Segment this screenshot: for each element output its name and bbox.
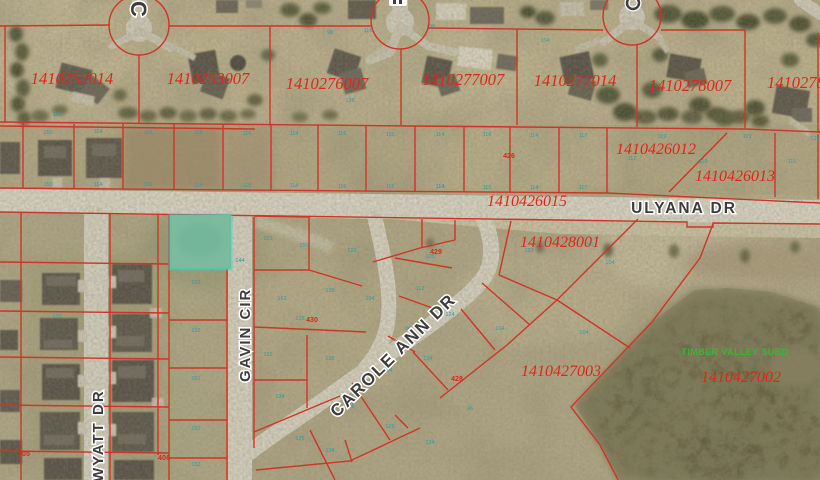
svg-text:116: 116: [243, 183, 252, 189]
svg-text:426: 426: [503, 153, 515, 160]
svg-text:1410277014: 1410277014: [534, 71, 617, 90]
svg-text:152: 152: [191, 426, 200, 432]
svg-text:1410276007: 1410276007: [286, 74, 369, 93]
svg-text:C: C: [126, 1, 151, 19]
svg-text:114: 114: [530, 185, 539, 191]
svg-text:104: 104: [495, 326, 504, 332]
svg-text:428: 428: [451, 376, 463, 383]
svg-text:119: 119: [658, 134, 667, 140]
svg-text:116: 116: [243, 131, 252, 137]
svg-text:115: 115: [386, 184, 395, 190]
svg-text:116: 116: [364, 28, 373, 34]
svg-text:153: 153: [191, 462, 200, 468]
svg-text:124: 124: [425, 440, 434, 446]
svg-text:1410252014: 1410252014: [31, 69, 114, 88]
svg-text:1410253007: 1410253007: [167, 69, 250, 88]
svg-text:117: 117: [579, 185, 588, 191]
svg-text:98: 98: [429, 24, 435, 30]
svg-text:132: 132: [810, 136, 819, 142]
svg-text:133: 133: [524, 248, 533, 254]
svg-text:126: 126: [385, 424, 394, 430]
svg-text:112: 112: [416, 286, 425, 292]
svg-text:112: 112: [628, 156, 637, 162]
svg-text:430: 430: [306, 317, 318, 324]
svg-text:GAVIN CIR: GAVIN CIR: [237, 288, 254, 382]
svg-text:150: 150: [43, 130, 52, 136]
svg-text:116: 116: [144, 182, 153, 188]
svg-text:114: 114: [530, 133, 539, 139]
svg-text:113: 113: [699, 159, 708, 165]
svg-text:114: 114: [94, 182, 103, 188]
svg-text:1410426015: 1410426015: [487, 193, 567, 210]
svg-text:TIMBER VALLEY SUBD: TIMBER VALLEY SUBD: [682, 347, 789, 357]
svg-text:114: 114: [290, 183, 299, 189]
svg-text:116: 116: [483, 185, 492, 191]
svg-text:123: 123: [263, 236, 272, 242]
svg-text:405: 405: [18, 451, 30, 458]
svg-text:150: 150: [43, 182, 52, 188]
svg-text:116: 116: [338, 184, 347, 190]
svg-text:104: 104: [579, 330, 588, 336]
svg-text:134: 134: [423, 356, 432, 362]
svg-text:115: 115: [788, 159, 797, 165]
svg-text:104: 104: [365, 296, 374, 302]
svg-text:152: 152: [191, 328, 200, 334]
svg-text:135: 135: [325, 288, 334, 294]
svg-text:126: 126: [295, 436, 304, 442]
svg-text:1410427003: 1410427003: [521, 363, 601, 380]
svg-text:104: 104: [540, 38, 549, 44]
svg-text:116: 116: [144, 130, 153, 136]
svg-text:114: 114: [290, 131, 299, 137]
svg-text:114: 114: [436, 132, 445, 138]
svg-text:161: 161: [277, 296, 286, 302]
svg-text:134: 134: [275, 394, 284, 400]
svg-text:115: 115: [386, 132, 395, 138]
svg-text:ULYANA DR: ULYANA DR: [631, 200, 737, 217]
svg-text:144: 144: [235, 258, 244, 264]
svg-text:152: 152: [191, 280, 200, 286]
svg-text:1410278007: 1410278007: [649, 76, 732, 95]
svg-text:96: 96: [467, 406, 473, 412]
svg-text:98: 98: [327, 30, 333, 36]
svg-text:138: 138: [325, 356, 334, 362]
svg-text:114: 114: [436, 184, 445, 190]
svg-text:114: 114: [194, 130, 203, 136]
svg-text:103: 103: [425, 254, 434, 260]
svg-text:116: 116: [483, 132, 492, 138]
svg-text:116: 116: [338, 131, 347, 137]
svg-text:1410278007: 1410278007: [767, 73, 820, 92]
svg-text:96: 96: [587, 242, 593, 248]
svg-text:150: 150: [299, 243, 308, 249]
svg-text:114: 114: [94, 129, 103, 135]
svg-text:122: 122: [347, 248, 356, 254]
svg-text:114: 114: [194, 183, 203, 189]
svg-text:1410427002: 1410427002: [701, 369, 781, 386]
svg-text:406: 406: [158, 453, 171, 462]
svg-text:104: 104: [605, 260, 614, 266]
svg-text:WYATT DR: WYATT DR: [90, 389, 107, 480]
svg-text:1410426013: 1410426013: [695, 168, 775, 185]
svg-text:103: 103: [52, 314, 61, 320]
svg-text:117: 117: [579, 133, 588, 139]
svg-text:134: 134: [325, 448, 334, 454]
svg-text:119: 119: [743, 134, 752, 140]
svg-text:128: 128: [295, 316, 304, 322]
svg-text:126: 126: [345, 98, 354, 104]
svg-text:119: 119: [53, 112, 62, 118]
svg-text:1410277007: 1410277007: [422, 70, 505, 89]
svg-text:151: 151: [191, 376, 200, 382]
svg-text:155: 155: [263, 352, 272, 358]
